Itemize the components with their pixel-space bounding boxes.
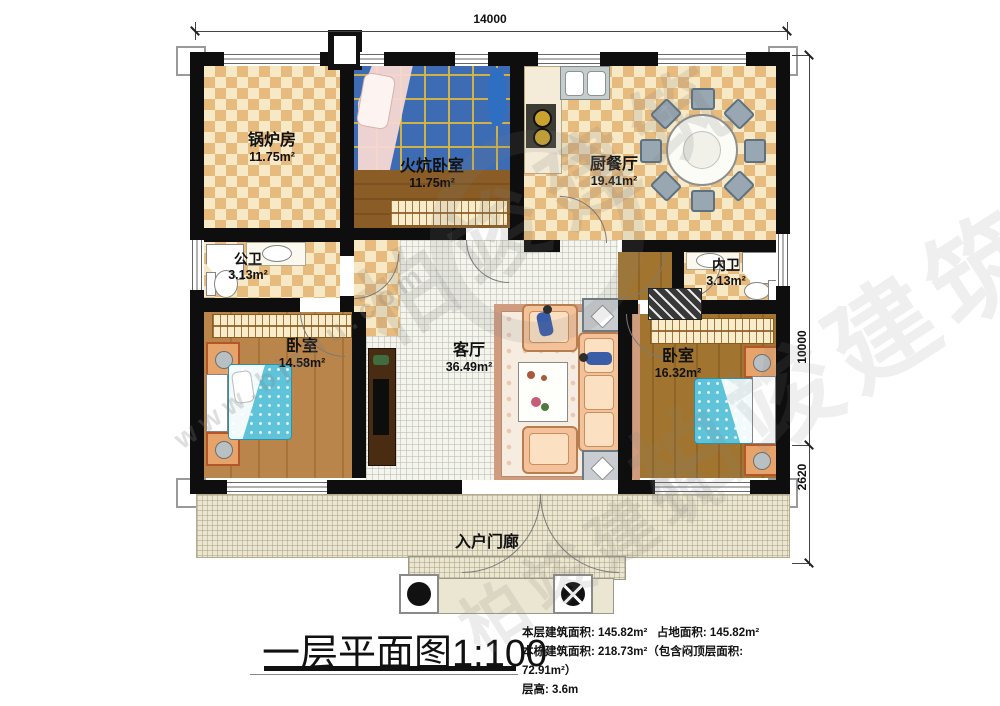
- stove: [526, 104, 556, 148]
- entry-opening: [462, 480, 618, 494]
- window: [227, 480, 327, 494]
- wall-segment: [190, 52, 204, 240]
- wall-segment: [384, 52, 455, 66]
- window: [190, 240, 204, 290]
- chimney: [328, 30, 362, 70]
- dimension-porch-depth: 2620: [795, 447, 809, 507]
- window: [658, 52, 746, 66]
- room-label-living: 客厅 36.49m²: [404, 342, 534, 374]
- column-cross-icon: [561, 582, 585, 606]
- column-circle-icon: [407, 582, 431, 606]
- room-label-kang-bedroom: 火炕卧室 11.75m²: [364, 158, 500, 190]
- dimension-line-top: [195, 31, 787, 32]
- bed-headboard: [752, 376, 776, 444]
- room-label-bedroom-left: 卧室 14.58m²: [252, 338, 352, 370]
- wall-segment: [340, 66, 354, 256]
- wall-segment: [510, 66, 524, 240]
- wall-segment: [600, 52, 658, 66]
- side-table: [582, 450, 620, 484]
- sofa: [578, 332, 622, 452]
- info-line-height: 层高: 3.6m: [522, 681, 792, 700]
- dimension-width: 14000: [440, 12, 540, 26]
- wall-segment: [618, 480, 655, 494]
- attic-stair: [648, 288, 702, 320]
- wall-segment: [618, 300, 638, 314]
- plant-icon: [373, 355, 389, 365]
- person-figure: [586, 352, 612, 365]
- bed: [694, 378, 754, 444]
- dining-chair: [744, 139, 766, 163]
- wall-segment: [352, 312, 366, 478]
- window: [360, 52, 384, 66]
- nightstand: [744, 346, 778, 378]
- wall-segment: [344, 298, 352, 312]
- room-label-kitchen-dining: 厨餐厅 19.41m²: [544, 156, 684, 188]
- bed-headboard: [206, 374, 228, 432]
- bed: [228, 364, 292, 440]
- wall-segment: [776, 52, 790, 234]
- window: [455, 52, 488, 66]
- radiator: [390, 200, 508, 226]
- kitchen-sink: [560, 66, 610, 100]
- wall-segment: [524, 240, 560, 252]
- wall-segment: [204, 298, 300, 312]
- porch-column: [553, 574, 593, 614]
- wall-segment: [204, 228, 340, 242]
- wall-segment: [190, 290, 204, 494]
- tv-icon: [373, 379, 389, 435]
- info-block: 本层建筑面积: 145.82m² 占地面积: 145.82m² 本栋建筑面积: …: [522, 624, 792, 700]
- window: [776, 234, 790, 286]
- dining-chair: [691, 88, 715, 110]
- room-label-porch: 入户门廊: [402, 534, 572, 552]
- pillow: [231, 370, 255, 404]
- dimension-depth: 10000: [795, 317, 809, 377]
- room-label-inner-bath: 内卫 3.13m²: [690, 258, 762, 288]
- room-label-boiler: 锅炉房 11.75m²: [214, 132, 330, 164]
- window: [224, 52, 320, 66]
- wall-segment: [618, 314, 632, 480]
- kang-drape: [488, 68, 506, 126]
- side-table: [582, 298, 620, 332]
- room-label-bedroom-right: 卧室 16.32m²: [632, 348, 724, 380]
- title-underline: [264, 666, 516, 671]
- wall-segment: [327, 480, 462, 494]
- person-figure: [579, 353, 588, 362]
- wall-segment: [776, 286, 790, 494]
- nightstand: [744, 444, 778, 476]
- title-underline-thin: [250, 674, 518, 675]
- room-label-public-bath: 公卫 3.13m²: [206, 252, 290, 282]
- wall-segment: [488, 52, 538, 66]
- porch-column: [399, 574, 439, 614]
- info-line-areas: 本层建筑面积: 145.82m² 占地面积: 145.82m²: [522, 624, 792, 643]
- window: [538, 52, 600, 66]
- dining-chair: [691, 190, 715, 212]
- floor-plan-canvas: 锅炉房 11.75m² 火炕卧室 11.75m² 厨餐厅 19.41m² 公卫 …: [0, 0, 1000, 706]
- info-line-building: 本栋建筑面积: 218.73m²（包含闷顶层面积: 72.91m²）: [522, 643, 792, 681]
- person-figure: [543, 305, 552, 314]
- tv-cabinet: [368, 348, 396, 466]
- armchair: [522, 426, 578, 474]
- window: [655, 480, 750, 494]
- wall-segment: [354, 228, 466, 240]
- page-title: 一层平面图1:100: [262, 622, 562, 668]
- dimension-line-right: [809, 56, 810, 566]
- kang-bed: [354, 66, 510, 170]
- wall-segment: [622, 240, 776, 252]
